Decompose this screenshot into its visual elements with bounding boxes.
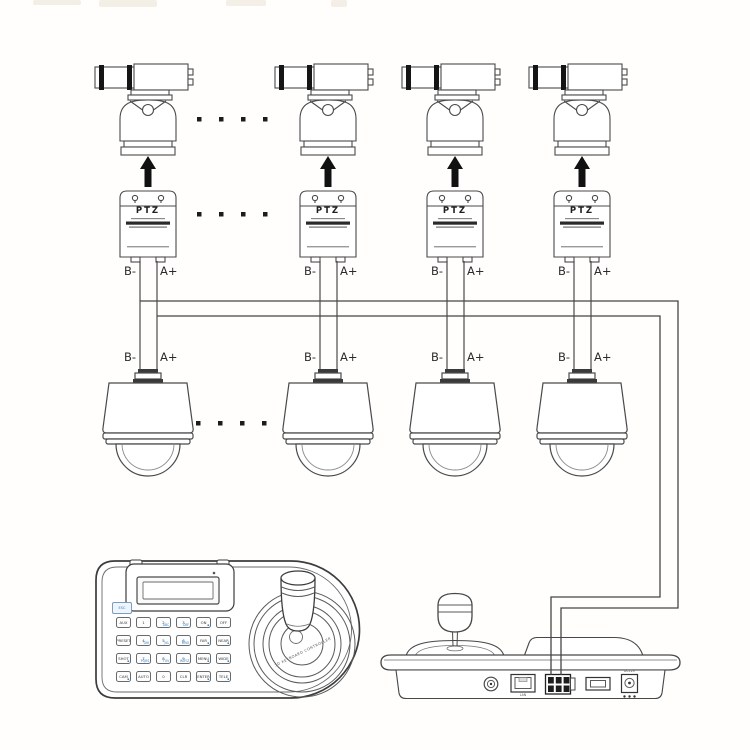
deck <box>381 655 680 670</box>
key-1: 1 <box>136 617 151 628</box>
key-enter: ENTER▪ <box>196 671 211 682</box>
ellipsis-dots <box>196 117 268 426</box>
wire-label-b-minus: B- <box>114 264 136 278</box>
dome-camera-2 <box>283 261 373 476</box>
camera-unit-1 <box>95 64 193 187</box>
key-aux: AUX <box>116 617 131 628</box>
ptz-decoder-row <box>120 191 610 262</box>
key-off: OFF <box>216 617 231 628</box>
dome-camera-3 <box>410 261 500 476</box>
camera-unit-4 <box>529 64 627 187</box>
lan-port-label: LAN <box>509 693 537 697</box>
key-cam: CAM▪ <box>116 671 131 682</box>
key-auto: AUTO <box>136 671 151 682</box>
joystick-controller <box>381 594 680 699</box>
esc-key: ESC <box>112 602 132 614</box>
key-on: ON▪ <box>196 617 211 628</box>
key-0: 0 <box>156 671 171 682</box>
ptz-decoder-label: PTZ <box>427 206 483 216</box>
wire-label-b-minus: B- <box>294 350 316 364</box>
power-port-label: DC12V <box>618 669 641 673</box>
ptz-decoder-label: PTZ <box>554 206 610 216</box>
wire-label-a-plus: A+ <box>340 350 364 364</box>
dome-camera-4 <box>537 261 627 476</box>
dome-camera-1 <box>103 261 193 476</box>
ptz-decoder-4 <box>554 191 610 262</box>
ptz-decoder-2 <box>300 191 356 262</box>
port-usb <box>586 678 610 691</box>
key-3: 3DEF <box>176 617 191 628</box>
key-tele: TELE▪ <box>216 671 231 682</box>
ptz-decoder-3 <box>427 191 483 262</box>
key-5: 5JKL <box>156 635 171 646</box>
joystick-ball <box>438 594 472 633</box>
wire-label-b-minus: B- <box>548 350 570 364</box>
port-lan <box>511 675 535 693</box>
key-clr: CLR <box>176 671 191 682</box>
ptz-decoder-label: PTZ <box>120 206 176 216</box>
dome-camera-row <box>103 261 627 476</box>
page: { "diagram": { "ptz_label": "PTZ", "wire… <box>0 0 750 750</box>
wire-label-b-minus: B- <box>421 264 443 278</box>
wire-label-b-minus: B- <box>548 264 570 278</box>
wire-label-a-plus: A+ <box>467 350 491 364</box>
wire-label-a-plus: A+ <box>594 264 618 278</box>
wire-label-a-plus: A+ <box>467 264 491 278</box>
wiring-diagram-art <box>0 0 750 750</box>
camera-unit-3 <box>402 64 500 187</box>
key-4: 4GHI <box>136 635 151 646</box>
rs485-terminal-block <box>546 675 576 695</box>
key-8: 8TUV <box>156 653 171 664</box>
port-round <box>484 677 498 691</box>
key-wide: WIDE▪ <box>216 653 231 664</box>
joystick-stem-base <box>447 646 463 651</box>
key-7: 7PQRS <box>136 653 151 664</box>
key-2: 2ABC <box>156 617 171 628</box>
joystick-knob <box>281 571 315 631</box>
key-menu: MENU▪ <box>196 653 211 664</box>
wire-label-b-minus: B- <box>114 350 136 364</box>
camera-unit-2 <box>275 64 373 187</box>
wire-label-a-plus: A+ <box>160 350 184 364</box>
key-preset: PRESET <box>116 635 131 646</box>
key-6: 6MNO <box>176 635 191 646</box>
key-shot: SHOT▪ <box>116 653 131 664</box>
key-far: FAR▪ <box>196 635 211 646</box>
wire-label-b-minus: B- <box>421 350 443 364</box>
wire-label-a-plus: A+ <box>340 264 364 278</box>
ptz-decoder-1 <box>120 191 176 262</box>
ptz-decoder-label: PTZ <box>300 206 356 216</box>
key-near: NEAR▪ <box>216 635 231 646</box>
keypad: AUX 1 2ABC 3DEF ON▪ OFF PRESET 4GHI 5JKL… <box>116 617 231 682</box>
wire-label-b-minus: B- <box>294 264 316 278</box>
key-9: 9WXYZ <box>176 653 191 664</box>
camera-row <box>95 64 627 187</box>
wire-label-a-plus: A+ <box>160 264 184 278</box>
wire-label-a-plus: A+ <box>594 350 618 364</box>
